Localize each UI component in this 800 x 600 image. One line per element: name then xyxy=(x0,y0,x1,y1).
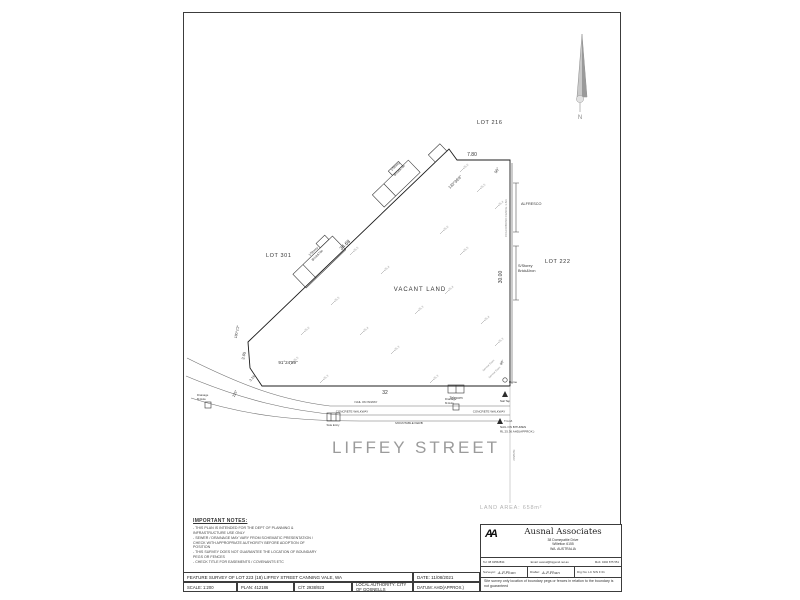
drafter-signature: A.F.Phan xyxy=(542,570,560,575)
important-note-item: - THIS SURVEY DOES NOT GUARANTEE THE LOC… xyxy=(193,550,319,560)
label-lot-222: LOT 222 xyxy=(545,259,571,265)
firm-header: AA Ausnal Associates 38 Domepattie Drive… xyxy=(481,525,621,558)
label-mountable-kerb: MOUNTABLE KERB xyxy=(395,421,422,425)
svg-text:25.4: 25.4 xyxy=(447,285,454,292)
titleblock-title: FEATURE SURVEY OF LOT 223 (18) LIFFEY ST… xyxy=(183,572,413,582)
label-sewer: SEWER xyxy=(512,449,516,461)
lot-boundary xyxy=(248,149,510,386)
drafter-label: Drafter: xyxy=(530,570,540,574)
surveyor-cell: Surveyor: A.F.Phan xyxy=(481,567,528,577)
label-colorbond-fence: COLORBOND FENCE 1.8m xyxy=(504,199,508,237)
label-lot-301: LOT 301 xyxy=(266,253,292,259)
angle-street: 225° xyxy=(232,389,239,398)
important-note-item: - THIS PLAN IS INTENDED FOR THE DEPT OF … xyxy=(193,526,319,536)
drainage-manhole-icon xyxy=(453,404,459,410)
svg-text:25.5: 25.5 xyxy=(462,246,469,253)
label-nail-walkway: NAIL ON W/WAY xyxy=(355,400,378,404)
label-street-name: LIFFEY STREET xyxy=(332,438,500,457)
svg-text:25.5: 25.5 xyxy=(479,183,486,190)
angle-top-right: 90° xyxy=(493,166,501,174)
svg-text:25.6: 25.6 xyxy=(303,326,310,333)
firm-block: AA Ausnal Associates 38 Domepattie Drive… xyxy=(480,524,622,592)
firm-mobile: Mob: 0402 875 551 xyxy=(595,560,619,564)
label-walkway-2: CONCRETE WALKWAY xyxy=(473,410,506,414)
label-service-point-1: Service Point xyxy=(481,358,495,372)
titleblock-datum: DATUM: AHD(APPROX.) xyxy=(413,582,480,592)
svg-text:25.6: 25.6 xyxy=(442,225,449,232)
firm-roles-row: Surveyor: A.F.Phan Drafter: A.F.Phan Drg… xyxy=(481,567,621,578)
surveyor-signature: A.F.Phan xyxy=(498,570,516,575)
surveyor-label: Surveyor: xyxy=(483,570,496,574)
svg-text:25.3: 25.3 xyxy=(417,305,424,312)
north-arrow-icon: N xyxy=(576,34,587,121)
angle-bottom-left: 91°24'59" xyxy=(278,360,298,365)
svg-text:25.3: 25.3 xyxy=(497,337,504,344)
label-walkway-1: CONCRETE WALKWAY xyxy=(336,410,369,414)
dim-top: 7.80 xyxy=(467,152,477,158)
svg-text:25.5: 25.5 xyxy=(333,296,340,303)
firm-logo: AA xyxy=(485,528,495,540)
firm-tel: Tel: 08 92552834 xyxy=(483,560,504,564)
svg-text:25.5: 25.5 xyxy=(352,246,359,253)
important-notes: IMPORTANT NOTES: - THIS PLAN IS INTENDED… xyxy=(193,518,319,565)
label-dome: Dome xyxy=(509,380,517,384)
svg-text:25.3: 25.3 xyxy=(432,374,439,381)
building-outline-1 xyxy=(289,232,346,288)
firm-address: 38 Domepattie Drive Willetton 6155 WA. A… xyxy=(509,538,617,551)
label-benchmark-1: NAIL ON BITUMEN xyxy=(500,425,526,429)
label-side-entry: Side Entry xyxy=(327,423,341,427)
label-land-area: LAND AREA: 658m² xyxy=(480,505,542,511)
drafter-cell: Drafter: A.F.Phan xyxy=(528,567,575,577)
titleblock-plan: PLAN: 412186 xyxy=(237,582,294,592)
titleblock-date: DATE: 11/08/2021 xyxy=(413,572,480,582)
label-benchmark-2: RL 25.36 AHD(APPROX.) xyxy=(500,430,534,434)
firm-address-line3: WA. AUSTRALIA xyxy=(509,547,617,551)
label-alfresco: ALFRESCO xyxy=(521,202,542,206)
nail-tap-marker-icon xyxy=(502,391,508,397)
svg-text:25.3: 25.3 xyxy=(393,345,400,352)
bearing-diagonal: 133°36'9" xyxy=(447,174,463,190)
svg-text:25.4: 25.4 xyxy=(483,315,490,322)
label-building3-line2: Brick&Iron xyxy=(518,269,536,273)
dim-right: 30.00 xyxy=(498,271,504,284)
svg-text:25.4: 25.4 xyxy=(383,265,390,272)
important-notes-title: IMPORTANT NOTES: xyxy=(193,518,319,524)
firm-email: Email: ausnal@bigpond.net.au xyxy=(531,560,569,564)
important-note-item: - CHECK TITLE FOR EASEMENTS / COVENANTS … xyxy=(193,560,319,565)
svg-text:25.6: 25.6 xyxy=(462,163,469,170)
label-lot-216: LOT 216 xyxy=(477,120,503,126)
svg-text:25.3: 25.3 xyxy=(322,374,329,381)
dome-icon xyxy=(503,378,507,382)
label-nail-tap: Nail Tap xyxy=(500,399,510,403)
titleblock-scale: SCALE: 1:200 xyxy=(183,582,237,592)
label-service-point-2: Service Point xyxy=(487,365,501,379)
alfresco-bracket xyxy=(513,183,519,300)
label-tgm: T.G.M. xyxy=(504,419,513,423)
firm-contact-row: Tel: 08 92552834 Email: ausnal@bigpond.n… xyxy=(481,558,621,567)
plan-drawing: N xyxy=(0,0,800,600)
label-drainage-left-2: M.Hole xyxy=(197,397,206,401)
label-vacant-land: VACANT LAND xyxy=(394,287,446,293)
label-drainage-mid-2: M.Hole xyxy=(445,401,454,405)
north-label: N xyxy=(578,115,582,121)
dim-left-a: 3.65 xyxy=(240,351,247,360)
firm-name: Ausnal Associates xyxy=(509,527,617,537)
important-note-item: - SEWER / DRAINAGE MAY VARY FROM SCHEMAT… xyxy=(193,536,319,551)
titleblock-authority: LOCAL AUTHORITY: CITY OF GOSNELLS xyxy=(352,582,413,592)
drawing-number-cell: Drg No: LC N/N F 01 xyxy=(575,567,621,577)
label-building3-line1: S/Storey xyxy=(518,264,533,268)
bearing-left: 180°1'2" xyxy=(234,324,241,338)
angle-bottom-right: 90° xyxy=(499,359,505,366)
survey-plan-page: N xyxy=(0,0,800,600)
svg-text:25.4: 25.4 xyxy=(362,326,369,333)
site-survey-note: Site survey only location of boundary pe… xyxy=(481,578,621,589)
dim-bottom: 32 xyxy=(382,390,388,396)
titleblock-ct: C/T: 2938/923 xyxy=(294,582,352,592)
